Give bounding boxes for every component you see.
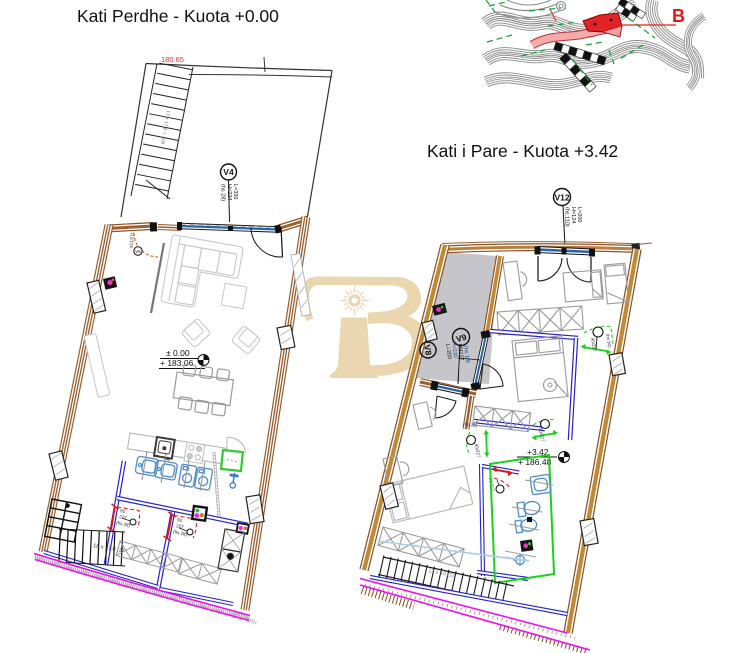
svg-text:V8: V8 bbox=[422, 344, 434, 356]
svg-text:V12: V12 bbox=[554, 193, 569, 203]
svg-text:V6: V6 bbox=[135, 249, 141, 254]
svg-text:V4: V4 bbox=[223, 167, 234, 177]
svg-text:L=350H=224(hs 28): L=350H=224(hs 28) bbox=[220, 184, 238, 201]
svg-text:Kati i Pare - Kuota +3.42: Kati i Pare - Kuota +3.42 bbox=[427, 141, 618, 161]
svg-text:B: B bbox=[672, 6, 685, 26]
svg-text:+ 183.06: + 183.06 bbox=[160, 358, 194, 368]
svg-text:Kati Perdhe - Kuota +0.00: Kati Perdhe - Kuota +0.00 bbox=[77, 6, 279, 26]
svg-text:180.65: 180.65 bbox=[161, 55, 184, 64]
svg-text:± 0.00: ± 0.00 bbox=[166, 348, 190, 358]
